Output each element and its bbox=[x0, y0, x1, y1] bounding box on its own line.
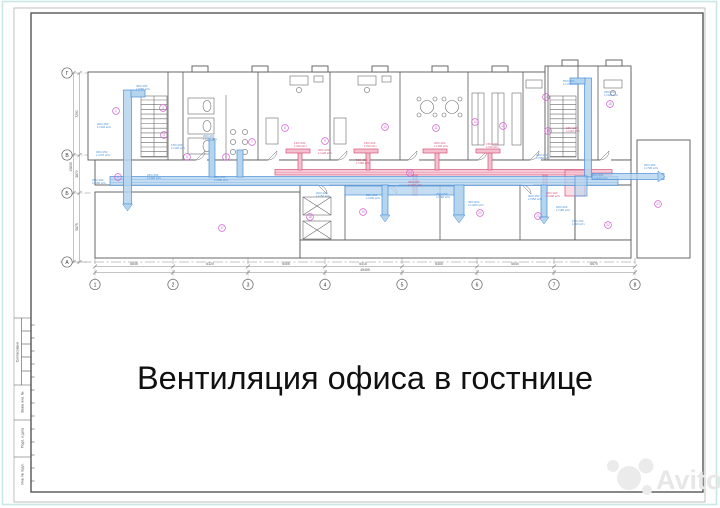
duct-label-red: 150×100L=90 м³/ч bbox=[364, 141, 377, 148]
room-tag-number: 11 bbox=[434, 126, 438, 130]
room-tag-number: 15 bbox=[546, 129, 550, 133]
room-tag-number: 13 bbox=[501, 124, 505, 128]
dim-value: 6415 bbox=[359, 262, 367, 266]
room-tag-number: 21 bbox=[536, 214, 540, 218]
stamp-label-soglasovano: Согласовано bbox=[16, 342, 20, 363]
avito-logo-circle-right bbox=[639, 459, 654, 474]
avito-logo-circle-small bbox=[642, 485, 652, 495]
dim-value: 6540 bbox=[511, 262, 519, 266]
dim-value: 6400 bbox=[435, 262, 443, 266]
dim-value: 3870 bbox=[75, 170, 79, 178]
stamp-label-podp: Подп. и дата bbox=[21, 428, 25, 448]
grid-bubble-row-label: Г bbox=[66, 71, 69, 77]
dim-value: 6320 bbox=[206, 262, 214, 266]
room-tag-number: 20 bbox=[478, 211, 482, 215]
duct-label-red: 150×100L=90 м³/ч bbox=[294, 141, 307, 148]
room-tag-number: 16 bbox=[608, 102, 612, 106]
grid-bubble-col-label: 6 bbox=[476, 282, 479, 288]
room-tag-number: 24 bbox=[408, 171, 412, 175]
room-tag-number: 7 bbox=[251, 140, 253, 144]
drawing-sheet: Согласовано Взам. инв. № Подп. и дата Ин… bbox=[0, 0, 720, 508]
grid-bubble-col-label: 2 bbox=[172, 282, 175, 288]
ventilation-plan-svg: Согласовано Взам. инв. № Подп. и дата Ин… bbox=[0, 0, 720, 508]
dim-total: 15835 bbox=[69, 162, 73, 172]
grid-bubble-col-label: 8 bbox=[634, 282, 637, 288]
room-tag-number: 1 bbox=[117, 175, 119, 179]
grid-bubble-col-label: 7 bbox=[553, 282, 556, 288]
room-tag-number: 9 bbox=[324, 139, 326, 143]
room-tag-number: 12 bbox=[473, 120, 477, 124]
dim-value: 6645 bbox=[130, 262, 138, 266]
dim-value: 5875 bbox=[75, 223, 79, 231]
room-tag-number: 5 bbox=[186, 155, 188, 159]
grid-bubble-col-label: 3 bbox=[247, 282, 250, 288]
stamp-label-inv: Инв. № подл. bbox=[21, 463, 25, 484]
room-tag-number: 2 bbox=[115, 109, 117, 113]
room-tag-number: 3 bbox=[162, 106, 164, 110]
room-tag-number: 22 bbox=[606, 223, 610, 227]
building-walls bbox=[88, 60, 690, 258]
duct-label-red: 150×100L=90 м³/ч bbox=[486, 142, 499, 149]
room-tag-number: 17 bbox=[220, 226, 224, 230]
avito-logo-circle-big bbox=[617, 466, 641, 490]
room-tag-number: 10 bbox=[383, 125, 387, 129]
stamp-label-vzam: Взам. инв. № bbox=[21, 391, 25, 412]
drawing-title: Вентиляция офиса в гостнице bbox=[137, 360, 593, 396]
room-tag-number: 8 bbox=[284, 126, 286, 130]
room-tag-number: 23 bbox=[656, 202, 660, 206]
room-tag-number: 14 bbox=[544, 95, 548, 99]
dim-value: 6405 bbox=[282, 262, 290, 266]
room-tag-number: 19 bbox=[361, 210, 365, 214]
room-tag-number: 4 bbox=[163, 133, 165, 137]
grid-bubble-col-label: 1 bbox=[94, 282, 97, 288]
grid-bubble-col-label: 5 bbox=[401, 282, 404, 288]
room-tag-number: 6 bbox=[225, 155, 227, 159]
dim-value: 7290 bbox=[75, 110, 79, 118]
duct-label-blue: 150×100L=90 м³/ч bbox=[572, 219, 585, 226]
avito-logo-circle-top bbox=[607, 460, 619, 472]
grid-bubble-col-label: 4 bbox=[324, 282, 327, 288]
avito-watermark-text: Avito bbox=[656, 465, 720, 495]
stamp-labels: Согласовано Взам. инв. № Подп. и дата Ин… bbox=[16, 342, 25, 485]
dim-total: 45455 bbox=[360, 268, 370, 272]
dim-value: 6670 bbox=[590, 262, 598, 266]
room-tag-number: 18 bbox=[308, 215, 312, 219]
